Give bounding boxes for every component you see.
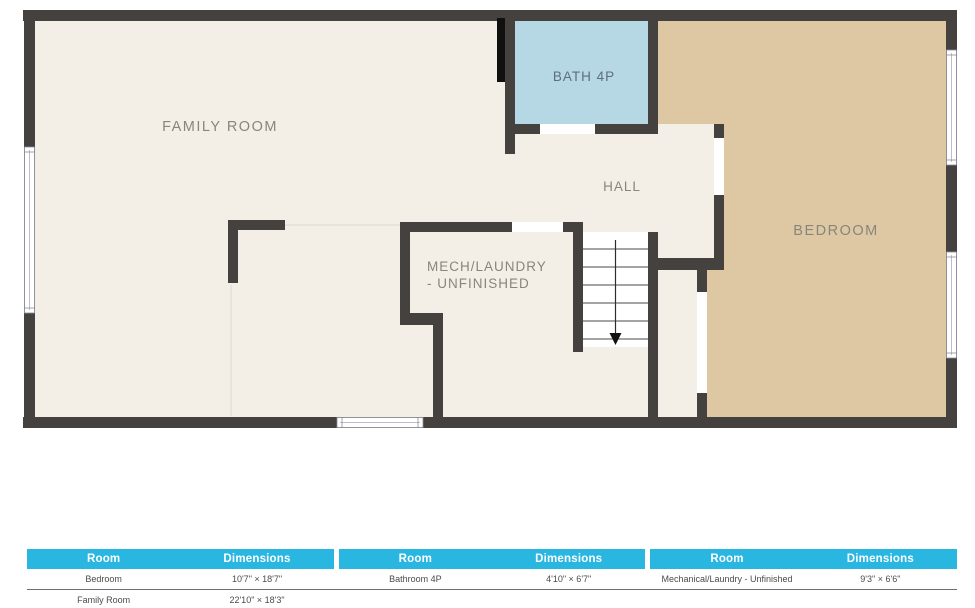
wall-stairs-left xyxy=(573,222,583,352)
wall-outer-top xyxy=(23,10,957,21)
cell-room-name: Family Room xyxy=(27,590,180,608)
cell-room-name: Mechanical/Laundry - Unfinished xyxy=(650,569,803,589)
bedroom-label: BEDROOM xyxy=(793,223,878,239)
wall-mech-left xyxy=(400,222,410,325)
header-dimensions-3: Dimensions xyxy=(804,549,957,569)
table-row: Bedroom 10'7" × 18'7" Bathroom 4P 4'10" … xyxy=(27,569,957,589)
corridor-floor xyxy=(658,270,697,425)
bedroom-door-opening xyxy=(697,292,707,393)
table-header-group-1: Room Dimensions xyxy=(27,549,334,569)
floor-plan-page: FAMILY ROOM BATH 4P HALL BEDROOM MECH/LA… xyxy=(0,0,975,608)
cell-room-dimensions: 4'10" × 6'7" xyxy=(492,569,645,589)
cell-room-name: Bathroom 4P xyxy=(339,569,492,589)
window-right-upper xyxy=(947,50,957,165)
cell-room-dimensions: 10'7" × 18'7" xyxy=(180,569,333,589)
header-room-3: Room xyxy=(650,549,803,569)
window-right-lower xyxy=(947,252,957,358)
hall-bedroom-door-opening xyxy=(714,138,724,195)
header-room-1: Room xyxy=(27,549,180,569)
window-left xyxy=(25,147,35,313)
family-room-label: FAMILY ROOM xyxy=(162,119,278,135)
header-dimensions-2: Dimensions xyxy=(492,549,645,569)
cell-room-dimensions: 9'3" × 6'6" xyxy=(804,569,957,589)
wall-mech-lower xyxy=(433,313,443,425)
wall-outer-bottom xyxy=(23,417,957,428)
cell-room-name: Bedroom xyxy=(27,569,180,589)
table-row: Family Room 22'10" × 18'3" xyxy=(27,590,957,608)
wall-stairs-right xyxy=(648,232,658,425)
wall-hall-bottom xyxy=(658,258,724,270)
floors xyxy=(24,10,957,428)
staircase xyxy=(583,232,648,347)
wall-accent-black-strip xyxy=(497,18,505,82)
table-header-group-3: Room Dimensions xyxy=(650,549,957,569)
bath-label: BATH 4P xyxy=(553,69,615,84)
mech-laundry-label-line2: - UNFINISHED xyxy=(427,276,530,291)
mech-door-opening xyxy=(512,222,563,232)
dimensions-table: Room Dimensions Room Dimensions Room Dim… xyxy=(27,549,957,608)
wall-bath-right xyxy=(648,10,658,134)
cell-room-dimensions: 22'10" × 18'3" xyxy=(180,590,333,608)
table-header-row: Room Dimensions Room Dimensions Room Dim… xyxy=(27,549,957,569)
mech-laundry-label-line1: MECH/LAUNDRY xyxy=(427,259,547,274)
window-bottom xyxy=(337,418,423,428)
table-header-group-2: Room Dimensions xyxy=(339,549,646,569)
hall-label: HALL xyxy=(603,179,641,194)
hall-floor-notch xyxy=(658,124,714,270)
floor-plan: FAMILY ROOM BATH 4P HALL BEDROOM MECH/LA… xyxy=(0,0,975,460)
wall-family-partition-v xyxy=(228,220,238,283)
header-dimensions-1: Dimensions xyxy=(180,549,333,569)
bath-door-opening xyxy=(540,124,595,134)
header-room-2: Room xyxy=(339,549,492,569)
